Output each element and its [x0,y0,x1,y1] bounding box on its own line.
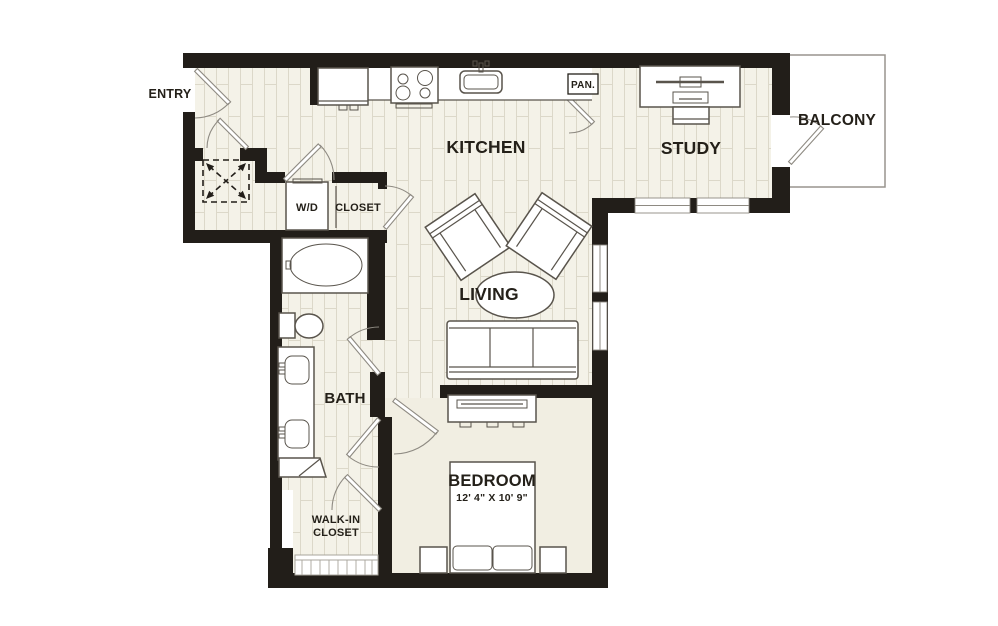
floor-plan-svg: PAN. [0,0,998,626]
floor-plan-page: PAN. [0,0,998,626]
vanity [278,347,314,460]
bedroom-label: BEDROOM [448,472,536,490]
balcony-door-opening [771,115,791,167]
balcony-label: BALCONY [798,112,876,129]
walkin-closet-fixtures [295,555,378,575]
walkin-label-line2: CLOSET [313,527,359,539]
desk [640,66,740,107]
pantry-label: PAN. [571,80,595,91]
study-label: STUDY [661,138,721,158]
washer-dryer-label: W/D [296,202,318,214]
entry-label: ENTRY [149,87,192,101]
sofa [447,321,578,379]
wall-bath-right-upper [367,243,385,340]
wall-left [183,112,195,243]
kitchen-label: KITCHEN [446,137,525,157]
vanity-end [279,458,326,477]
bedroom-dimensions: 12' 4" X 10' 9" [456,492,528,504]
bathtub [282,238,368,293]
wall-wd-top [263,172,285,183]
wall-bedroom-left [378,417,392,577]
dresser [448,395,536,427]
desk-chair [673,107,709,124]
living-label: LIVING [459,284,519,304]
toilet [279,313,323,338]
pantry: PAN. [568,74,598,94]
wall-study-bottom [592,198,790,213]
refrigerator [318,68,368,110]
wall-bath-right-mid [370,372,385,417]
closet-label: CLOSET [335,202,381,214]
stove [391,67,438,108]
nightstand-right [540,547,566,573]
bath-label: BATH [324,390,365,407]
closet-shelf [295,555,378,575]
wall-alcove-left [183,148,203,161]
walkin-label-line1: WALK-IN [312,514,360,526]
nightstand-left [420,547,447,573]
